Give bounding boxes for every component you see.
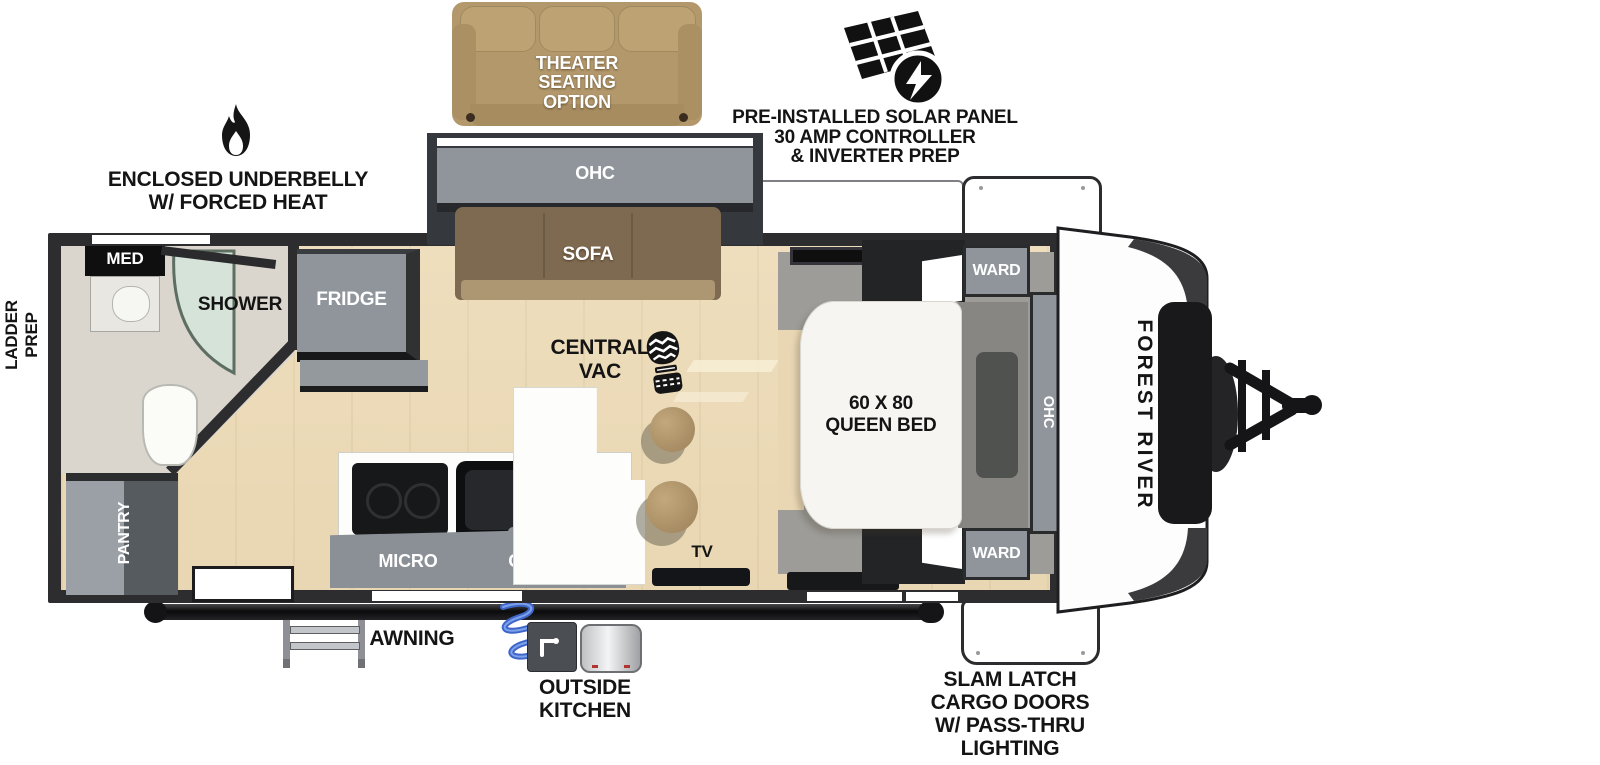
- theater-seating-label: THEATER SEATING OPTION: [452, 54, 702, 112]
- ladder-prep-callout: LADDER PREP: [2, 276, 48, 394]
- awning-rail: [152, 604, 942, 620]
- theater-cushion: [539, 6, 615, 52]
- theater-foot: [466, 113, 475, 122]
- floorplan-canvas: THEATER SEATING OPTION: [0, 0, 1600, 765]
- stool: [650, 407, 695, 452]
- step-foot: [358, 659, 365, 668]
- outside-kitchen-sink-box: [527, 622, 577, 672]
- awning-callout: AWNING: [352, 628, 472, 651]
- window-gap: [807, 592, 902, 601]
- screw-icon: [979, 186, 983, 190]
- griddle-knob: [592, 665, 598, 668]
- griddle-knob: [624, 665, 630, 668]
- window-gap: [92, 235, 210, 244]
- floor-highlight: [686, 360, 778, 372]
- sofa-label: SOFA: [455, 245, 721, 266]
- hitch-coupler-knob: [1302, 395, 1322, 415]
- underbelly-callout: ENCLOSED UNDERBELLY W/ FORCED HEAT: [78, 168, 398, 214]
- toilet: [142, 384, 198, 466]
- step-foot: [283, 659, 290, 668]
- ward-top-label: WARD: [966, 262, 1027, 279]
- theater-foot: [679, 113, 688, 122]
- faucet-icon: [536, 631, 566, 661]
- ward-bottom-label: WARD: [966, 545, 1027, 562]
- outside-kitchen-griddle: [580, 624, 642, 673]
- cooktop: [352, 463, 448, 535]
- pantry-label: PANTRY: [116, 473, 140, 593]
- flame-icon: [214, 103, 258, 161]
- screw-icon: [976, 651, 980, 655]
- step-rung: [290, 642, 360, 650]
- step-rung: [290, 626, 360, 634]
- fridge-label: FRIDGE: [297, 290, 406, 311]
- window-gap: [372, 591, 522, 601]
- slide-ohc-label: OHC: [437, 164, 753, 183]
- floor-highlight: [673, 392, 749, 402]
- screw-icon: [1081, 186, 1085, 190]
- outside-kitchen-callout: OUTSIDE KITCHEN: [505, 676, 665, 722]
- brand-label: FOREST RIVER: [1131, 265, 1155, 565]
- slideout-ohc: OHC: [437, 148, 753, 212]
- burner: [404, 483, 440, 519]
- solar-panel-icon: [828, 6, 953, 112]
- propane-cover: [1158, 302, 1212, 524]
- slam-latch-callout: SLAM LATCH CARGO DOORS W/ PASS-THRU LIGH…: [915, 668, 1105, 760]
- med-cabinet: MED: [85, 246, 165, 276]
- queen-bed: 60 X 80 QUEEN BED: [800, 301, 962, 529]
- burner: [366, 483, 402, 519]
- hitch-crossbar: [1262, 370, 1270, 440]
- ward-bottom: WARD: [963, 528, 1030, 580]
- sofa-seat-front: [461, 280, 715, 300]
- awning-rail-endcap-right: [918, 601, 944, 623]
- micro-label: MICRO: [358, 552, 458, 571]
- theater-seating-sofa: THEATER SEATING OPTION: [452, 2, 702, 126]
- tv-label: TV: [672, 543, 732, 561]
- slideout-window-strip: [437, 138, 753, 146]
- bed-pillow: [976, 352, 1018, 478]
- screw-icon: [1081, 651, 1085, 655]
- entry-door-opening: [192, 566, 294, 602]
- front-cap: [1050, 220, 1330, 620]
- sofa: SOFA: [455, 207, 721, 300]
- shower-label: SHOWER: [185, 295, 295, 316]
- med-label: MED: [85, 250, 165, 268]
- ward-top: WARD: [963, 245, 1030, 297]
- fridge: FRIDGE: [297, 249, 420, 362]
- window-gap: [906, 592, 958, 601]
- awning-rail-endcap-left: [144, 601, 167, 623]
- solar-callout: PRE-INSTALLED SOLAR PANEL 30 AMP CONTROL…: [730, 108, 1020, 167]
- hitch-crossbar: [1238, 360, 1246, 452]
- bath-sink: [112, 286, 150, 322]
- stool: [646, 481, 698, 533]
- ward-top-window: [922, 255, 962, 307]
- tv: [652, 568, 750, 586]
- counter-by-fridge: [300, 360, 428, 392]
- queen-bed-label: 60 X 80 QUEEN BED: [800, 393, 962, 437]
